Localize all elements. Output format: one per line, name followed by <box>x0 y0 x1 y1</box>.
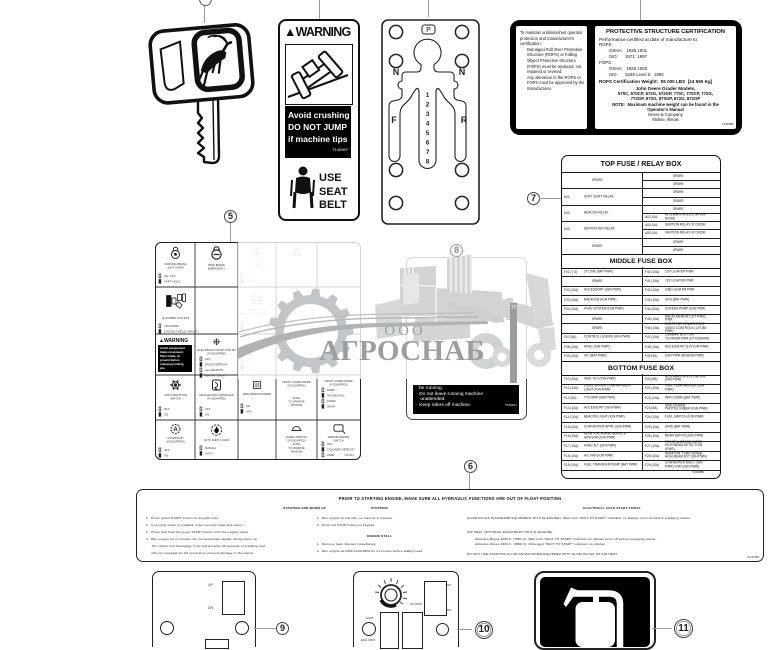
svg-text:2: 2 <box>426 102 430 109</box>
svg-text:HDW DECIMAL APPROVED: HDW DECIMAL APPROVED <box>199 393 234 397</box>
svg-text:(IF EQUIPPED): (IF EQUIPPED) <box>166 440 185 444</box>
svg-text:8: 8 <box>426 159 430 166</box>
svg-text:WINDOW: WINDOW <box>291 449 303 453</box>
svg-text:OPEN: OPEN <box>327 388 335 392</box>
svg-text:N: N <box>459 67 466 77</box>
svg-text:MIRROR/HEATED: MIRROR/HEATED <box>328 435 350 439</box>
svg-text:LAMP: LAMP <box>327 453 335 457</box>
svg-text:MANUAL: MANUAL <box>205 446 217 450</box>
svg-text:OFF: OFF <box>205 407 211 411</box>
svg-text:3: 3 <box>426 111 430 118</box>
svg-text:T140919: T140919 <box>344 453 355 457</box>
svg-text:FRONT DEFROST: FRONT DEFROST <box>205 363 228 367</box>
svg-text:OFF: OFF <box>205 357 211 361</box>
svg-text:DOME LAMP/FTN: DOME LAMP/FTN <box>286 435 307 439</box>
svg-text:ON: ON <box>164 413 168 417</box>
svg-text:R: R <box>461 115 468 125</box>
svg-text:WASH: WASH <box>327 405 335 409</box>
svg-text:UNLOCKED: UNLOCKED <box>164 324 179 328</box>
svg-text:ON: ON <box>246 404 250 408</box>
svg-text:A: A <box>173 427 178 433</box>
svg-text:SHIFT HOLD: SHIFT HOLD <box>164 280 180 284</box>
svg-text:MAX AUTO/FLR: MAX AUTO/FLR <box>205 374 225 378</box>
svg-text:OFF: OFF <box>327 442 333 446</box>
svg-text:TO OPERATE: TO OPERATE <box>288 400 305 404</box>
svg-text:ELECTRONIC FRONT AND RH: ELECTRONIC FRONT AND RH <box>197 348 235 352</box>
svg-text:EMERGENCY: EMERGENCY <box>208 267 226 271</box>
svg-text:N: N <box>393 67 400 77</box>
svg-text:SIDE WINDOW WIPER: SIDE WINDOW WIPER <box>243 392 271 396</box>
svg-text:1: 1 <box>426 92 430 99</box>
svg-text:SWITCH: SWITCH <box>170 397 181 401</box>
svg-text:4: 4 <box>426 121 430 128</box>
svg-text:(IF EQUIPPED): (IF EQUIPPED) <box>287 439 305 443</box>
svg-text:PARKING BRAKE: PARKING BRAKE <box>165 262 187 266</box>
svg-text:5: 5 <box>426 130 430 137</box>
svg-text:F: F <box>391 115 397 125</box>
svg-text:OFF: OFF <box>246 410 252 414</box>
svg-text:PUSH: PUSH <box>293 396 300 400</box>
svg-text:INT AND PULL: INT AND PULL <box>327 394 346 398</box>
svg-text:SWITCH: SWITCH <box>333 439 343 443</box>
svg-text:❉: ❉ <box>213 337 221 347</box>
svg-text:ON / OFF: ON / OFF <box>164 274 176 278</box>
svg-text:(2) POWER OUTLETS: (2) POWER OUTLETS <box>162 316 190 320</box>
svg-text:P: P <box>426 27 431 34</box>
svg-text:(IF EQUIPPED): (IF EQUIPPED) <box>207 397 226 401</box>
svg-text:SHUT DOWN: SHUT DOWN <box>167 266 184 270</box>
svg-text:WINDOW: WINDOW <box>291 403 303 407</box>
svg-text:ANTI DISRUPTOR: ANTI DISRUPTOR <box>164 393 187 397</box>
svg-text:7: 7 <box>426 149 430 156</box>
svg-text:AUTO SHIFT LOADS: AUTO SHIFT LOADS <box>204 438 230 442</box>
svg-text:TO OPERATE: TO OPERATE <box>288 446 305 450</box>
svg-text:ON: ON <box>164 454 168 458</box>
svg-text:LOCKOUT (HOLD UP/FLAT): LOCKOUT (HOLD UP/FLAT) <box>164 330 199 334</box>
svg-text:(IF EQUIPPED): (IF EQUIPPED) <box>207 352 226 356</box>
svg-text:6: 6 <box>426 140 430 147</box>
svg-text:▲WARNING: ▲WARNING <box>159 338 188 344</box>
svg-text:AUTO: AUTO <box>205 452 212 456</box>
svg-text:ON: ON <box>205 413 209 417</box>
svg-text:OFF: OFF <box>164 448 170 452</box>
svg-text:ALL DEFROST: ALL DEFROST <box>205 368 224 372</box>
svg-text:OFF: OFF <box>164 407 170 411</box>
svg-text:DOWN: DOWN <box>327 399 336 403</box>
svg-text:PARK BRAKE: PARK BRAKE <box>208 263 225 267</box>
svg-text:pin.: pin. <box>160 366 165 370</box>
svg-text:COLD/MED DEFROST: COLD/MED DEFROST <box>327 448 355 452</box>
svg-text:АГРОСНАБ: АГРОСНАБ <box>319 335 485 367</box>
svg-text:PUSH: PUSH <box>293 442 300 446</box>
svg-text:ACCESSORY: ACCESSORY <box>167 436 184 440</box>
